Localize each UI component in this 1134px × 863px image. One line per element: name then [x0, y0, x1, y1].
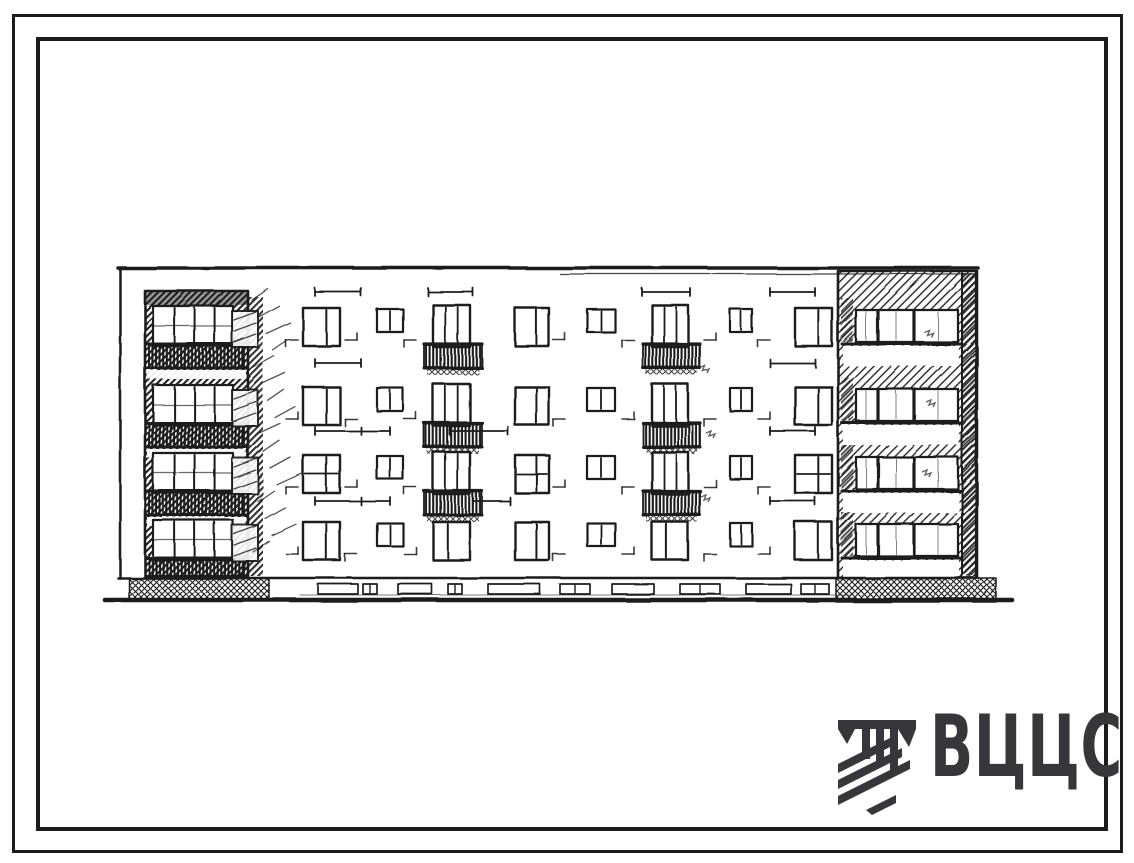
balcony-window: [643, 452, 700, 522]
window: [377, 309, 403, 332]
dimension-tick: [428, 288, 473, 296]
cellar-window: [488, 584, 540, 594]
balcony-window: [652, 522, 688, 560]
sill-mark: [553, 419, 565, 426]
vcis-emblem-icon: [836, 718, 920, 816]
window: [587, 523, 615, 546]
cellar-window: [746, 584, 791, 594]
window: [232, 311, 258, 347]
dimension-tick: [770, 427, 815, 435]
cellar-window: [560, 584, 590, 594]
window: [303, 387, 340, 425]
balcony-window: [643, 305, 700, 375]
dimension-tick: [315, 427, 390, 435]
sill-mark: [345, 554, 357, 561]
window: [730, 456, 752, 479]
cellar-window: [318, 584, 358, 594]
right-end-loggia-bay: [838, 271, 977, 578]
window: [795, 522, 832, 560]
window: [232, 525, 258, 561]
window: [377, 388, 403, 411]
drawing-sheet: ВЦЦС: [0, 0, 1134, 863]
sill-mark: [758, 487, 770, 494]
sill-mark: [553, 554, 565, 561]
sill-mark: [286, 487, 298, 494]
organization-logo: ВЦЦС: [836, 712, 1102, 812]
cellar-window: [448, 584, 462, 594]
sill-mark: [404, 487, 416, 494]
window: [730, 388, 752, 411]
window: [795, 455, 832, 493]
window: [232, 458, 258, 494]
window: [795, 387, 832, 425]
sill-mark: [622, 547, 634, 554]
sill-mark: [404, 412, 416, 419]
window: [515, 387, 549, 425]
cellar-window: [612, 584, 654, 594]
balcony-window: [424, 452, 482, 522]
cellar-window: [363, 584, 377, 594]
sill-mark: [553, 333, 565, 340]
window: [730, 309, 752, 332]
window: [515, 522, 549, 560]
sill-mark: [345, 333, 357, 340]
window: [587, 388, 615, 411]
sill-mark: [404, 547, 416, 554]
balcony-window: [433, 522, 470, 560]
dimension-tick: [315, 497, 390, 505]
cellar-window: [680, 584, 720, 594]
balcony-window: [643, 384, 700, 454]
sill-mark: [758, 412, 770, 419]
dimension-tick: [770, 288, 815, 296]
sill-mark: [704, 419, 716, 426]
dimension-tick: [770, 497, 815, 505]
dimension-tick: [315, 288, 361, 296]
sill-mark: [286, 412, 298, 419]
window: [303, 308, 340, 346]
logo-text: ВЦЦС: [930, 702, 1123, 792]
dimension-tick: [770, 359, 815, 367]
sill-mark: [758, 547, 770, 554]
balcony-window: [424, 384, 482, 454]
sill-mark: [704, 480, 716, 487]
cellar-window: [398, 584, 432, 594]
sill-mark: [622, 487, 634, 494]
ground-base: [105, 578, 1012, 602]
sill-mark: [286, 547, 298, 554]
sill-mark: [704, 333, 716, 340]
window: [795, 308, 832, 346]
sill-mark: [404, 340, 416, 347]
sill-mark: [704, 554, 716, 561]
sill-mark: [345, 419, 357, 426]
dimension-tick: [642, 288, 690, 296]
window: [587, 456, 615, 479]
window: [587, 309, 615, 332]
sill-mark: [622, 340, 634, 347]
cellar-window: [801, 584, 829, 594]
window: [515, 308, 549, 346]
sill-mark: [622, 412, 634, 419]
facade-windows: [232, 305, 832, 561]
window: [303, 455, 340, 493]
window: [515, 455, 549, 493]
sill-mark: [345, 480, 357, 487]
sill-mark: [553, 480, 565, 487]
window: [377, 456, 403, 479]
balcony-window: [424, 305, 482, 375]
window: [303, 522, 340, 560]
window: [730, 523, 752, 546]
window: [232, 390, 258, 426]
sill-mark: [286, 340, 298, 347]
dimension-tick: [315, 359, 361, 367]
window: [377, 523, 403, 546]
sill-mark: [758, 340, 770, 347]
